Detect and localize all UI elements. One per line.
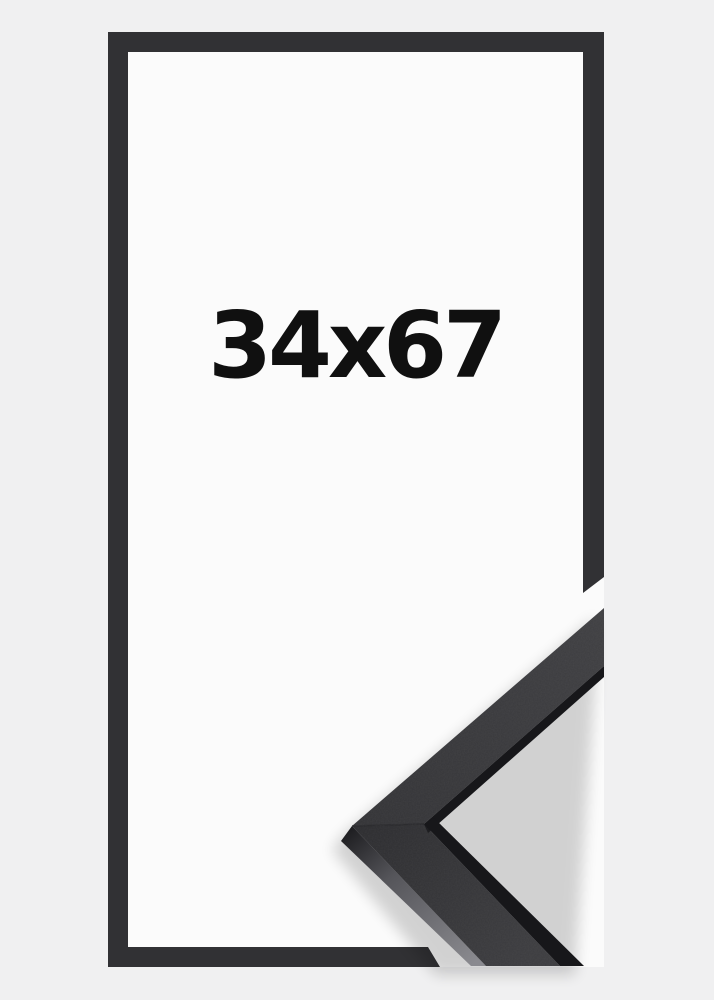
product-image: 34x67 [0,0,714,1000]
frame-illustration [0,0,714,1000]
size-label: 34x67 [128,300,583,392]
